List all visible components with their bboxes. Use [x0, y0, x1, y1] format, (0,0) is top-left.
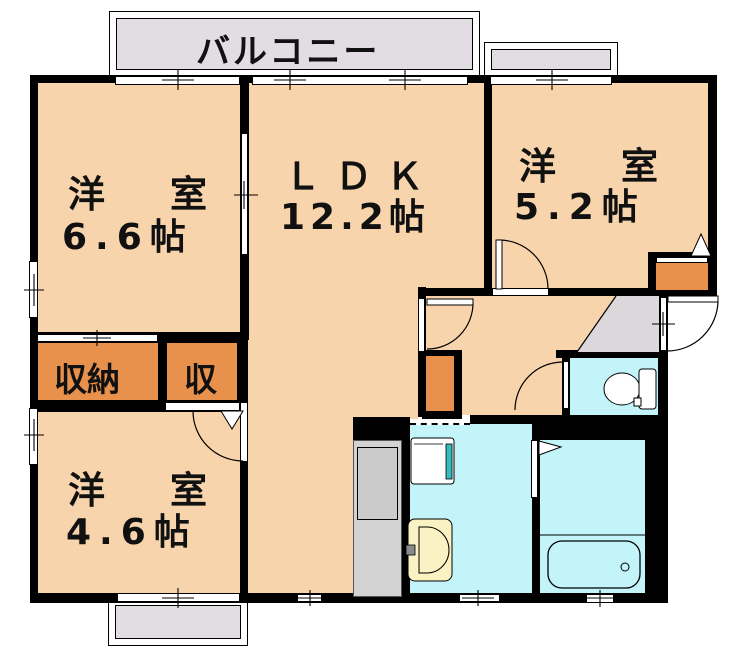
front-door-leaf [668, 296, 718, 302]
wall-toilet-top [556, 350, 668, 358]
room-66-size: 6.6帖 [62, 208, 194, 260]
wall-washroom-top [470, 415, 532, 424]
window-ldk-balcony [252, 76, 468, 85]
window-52-top [490, 76, 612, 85]
balcony-label: バルコニー [196, 24, 380, 73]
wall-counter-right [402, 440, 410, 597]
window-66-balcony [115, 76, 240, 85]
wall-52-left [484, 75, 492, 296]
lower-left-ledge [108, 598, 248, 646]
linen-closet [426, 356, 454, 412]
kitchen-sink [357, 447, 398, 520]
door-toilet-opening [563, 361, 569, 409]
door-52-opening [492, 288, 549, 296]
wall-closet-right [237, 336, 248, 406]
wall-toilet-right [658, 350, 668, 417]
floor-plan: バルコニー 洋 室 6.6帖 ＬＤＫ 12.2帖 洋 室 5.2帖 洋 室 4.… [0, 0, 745, 647]
entry-hall-floor [562, 296, 659, 352]
ldk-size: 12.2帖 [280, 188, 430, 240]
kitchen-wall-block [353, 417, 410, 440]
closet-52-floor [656, 263, 708, 290]
lower-left-ledge-floor [115, 605, 241, 639]
closet-main-front [37, 334, 158, 342]
bathroom-floor [540, 440, 645, 594]
wall-linen-right [454, 350, 462, 417]
wall-right-lower [645, 417, 668, 603]
washroom-entry-dashed [410, 419, 470, 425]
window-bathroom-bottom [586, 594, 614, 603]
window-66-left [29, 261, 38, 318]
upper-right-ledge [484, 42, 618, 77]
front-door-arc [667, 301, 718, 351]
wall-closet-divider [158, 343, 167, 400]
room-46-size: 4.6帖 [66, 503, 198, 555]
door-bath-opening [531, 440, 538, 498]
window-46-left [29, 408, 38, 465]
closet-main-label: 収納 [54, 353, 120, 401]
slider-66-ldk [241, 133, 248, 255]
window-kitchen-bottom [297, 594, 322, 602]
wall-bath-top [532, 415, 668, 440]
front-door-opening [660, 297, 667, 351]
window-washroom-bottom [459, 594, 500, 602]
window-46-bottom [117, 593, 240, 602]
closet-small-label: 収 [184, 353, 217, 401]
door-ldk-hall-opening [418, 298, 425, 352]
room-52-size: 5.2帖 [514, 178, 646, 230]
washroom-floor [410, 423, 532, 594]
closet-small-front [165, 402, 240, 411]
door-46-opening [240, 402, 248, 462]
toilet-floor [570, 358, 658, 417]
upper-right-ledge-floor [491, 49, 611, 70]
